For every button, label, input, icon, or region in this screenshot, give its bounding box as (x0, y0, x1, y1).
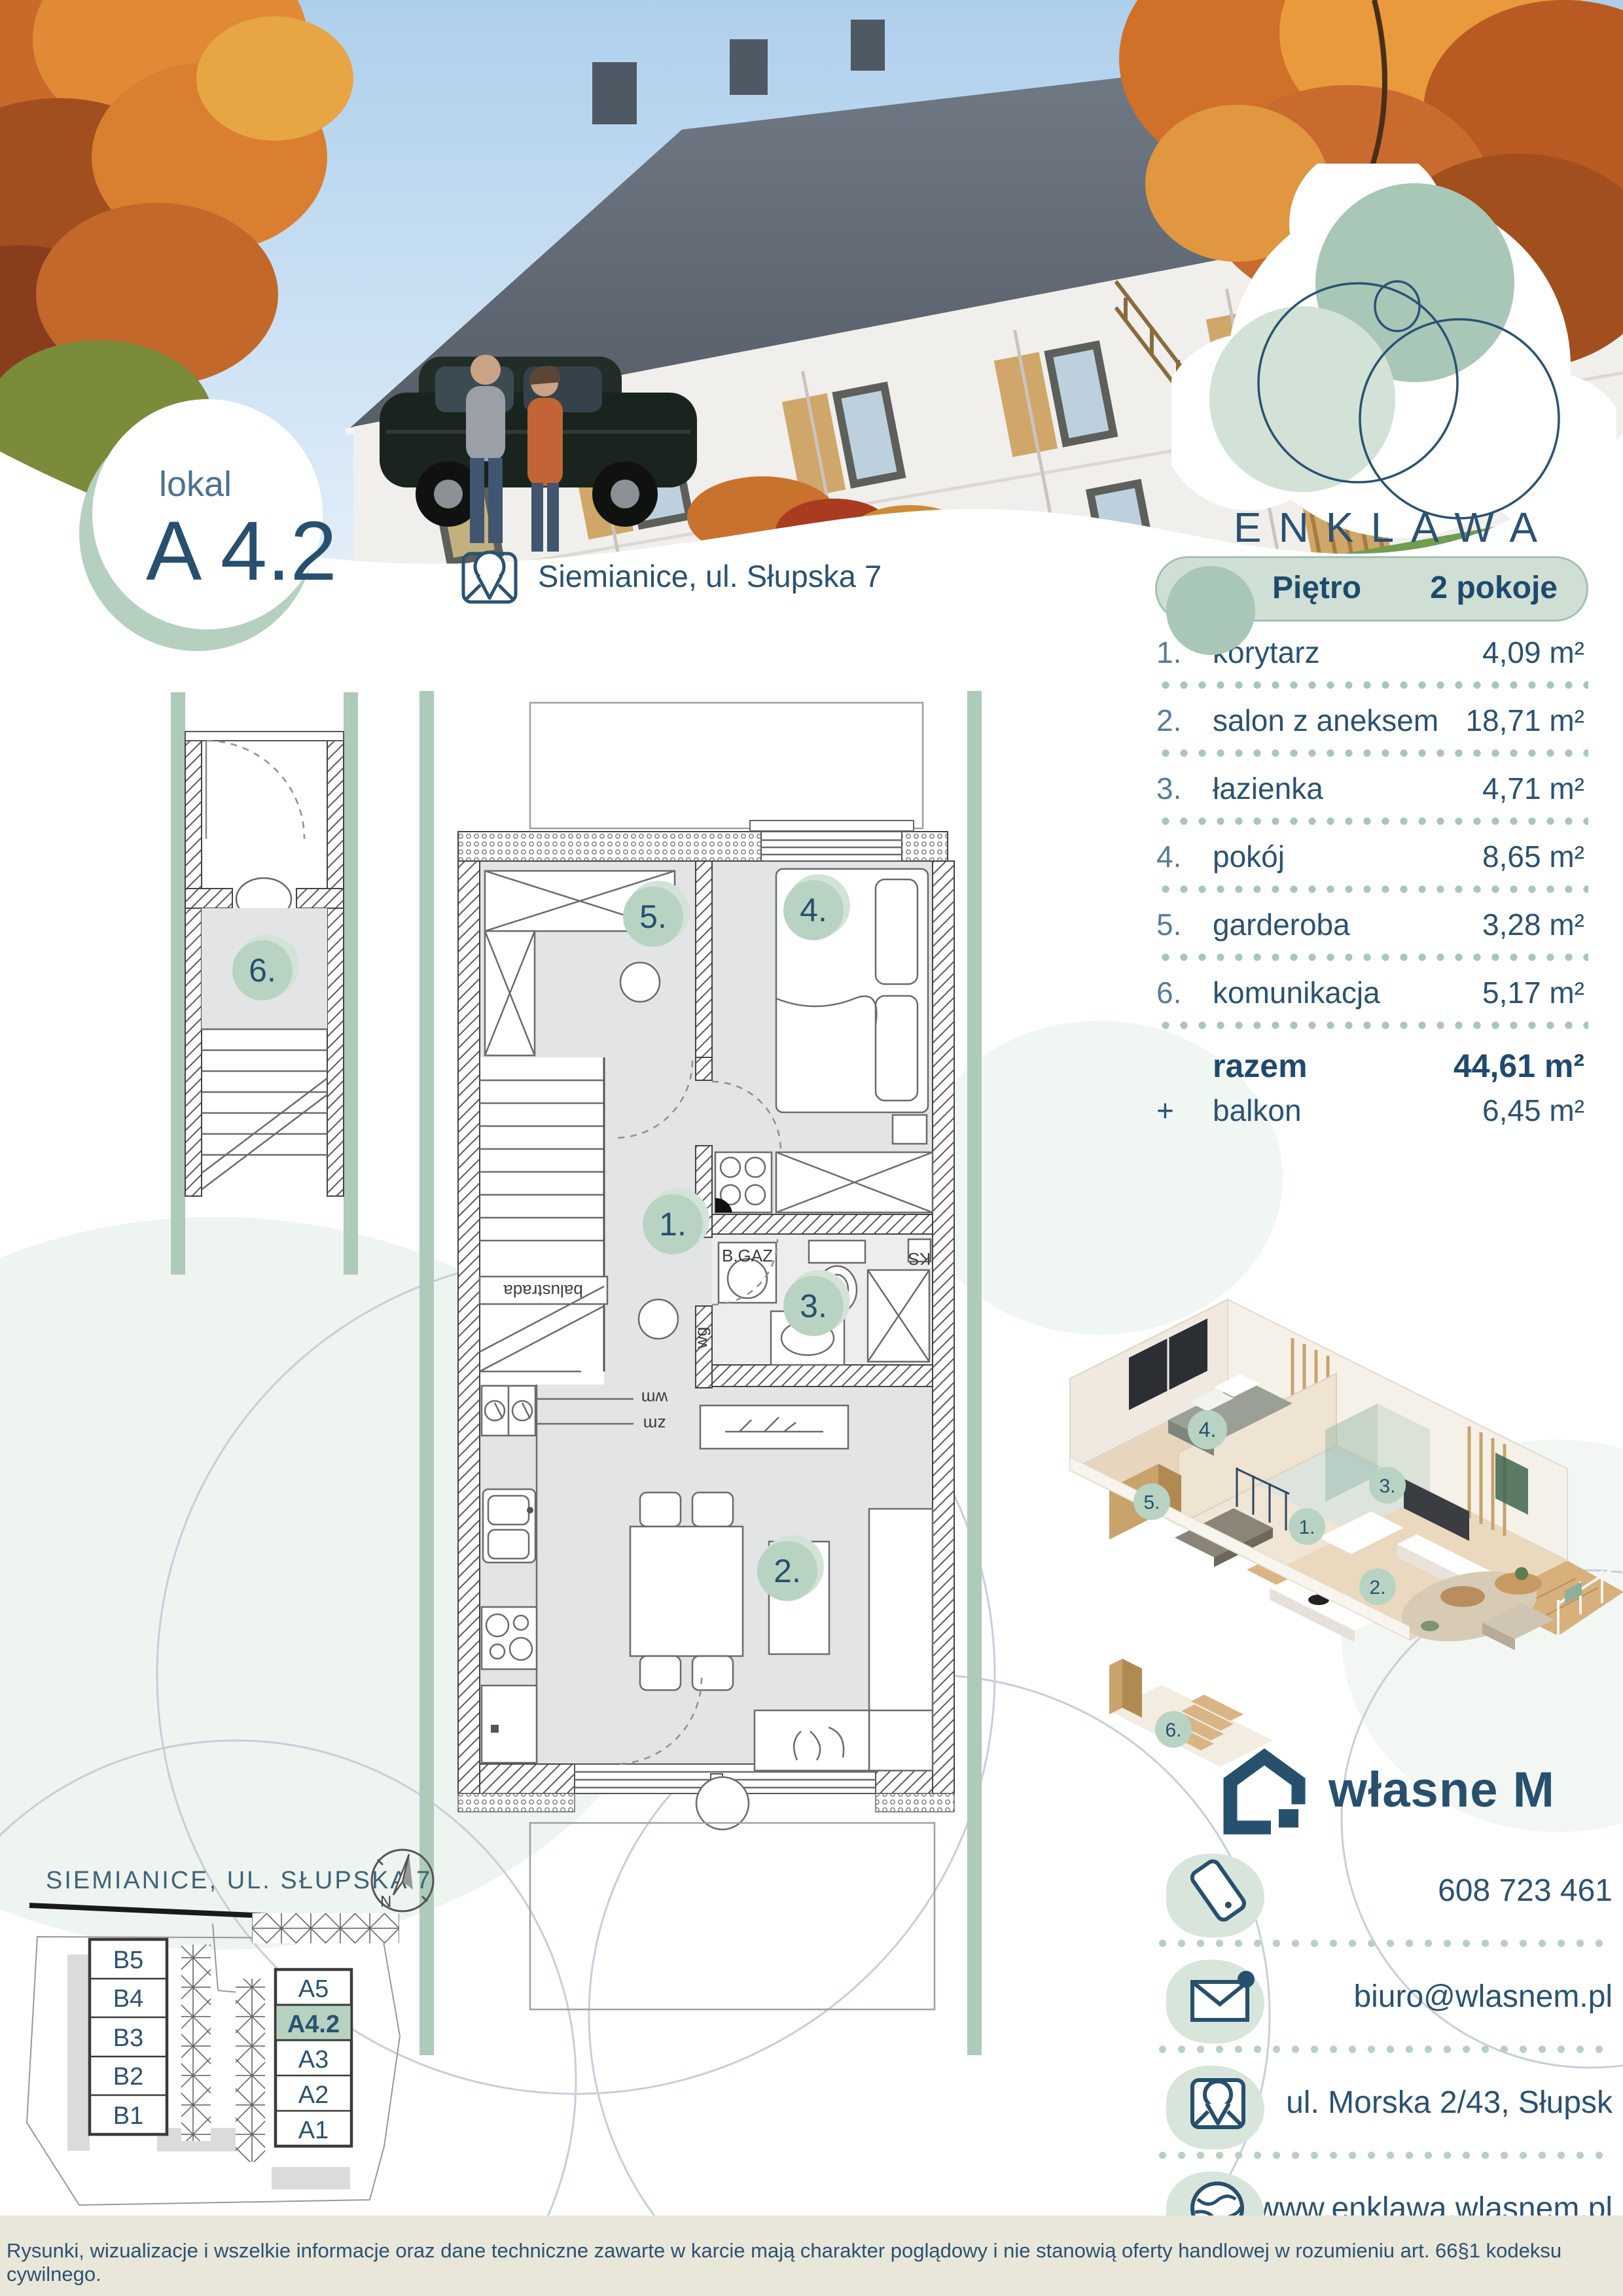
table-row: 6. komunikacja 5,17 m² (1155, 962, 1588, 1021)
row-value: 8,65 m² (1482, 839, 1584, 874)
balcony-outline (530, 1823, 935, 2009)
address-row[interactable]: ul. Morska 2/43, Słupsk (1153, 2054, 1613, 2151)
phone-icon (1178, 1851, 1257, 1930)
shower (868, 1270, 929, 1362)
dotted-separator (1153, 2045, 1613, 2054)
row-label: łazienka (1213, 771, 1482, 806)
balcony-row: + balkon 6,45 m² (1155, 1087, 1588, 1128)
svg-text:1.: 1. (659, 1206, 687, 1243)
chimney (730, 39, 768, 95)
table-row: 4. pokój 8,65 m² (1155, 826, 1588, 885)
area-table-header: Piętro 2 pokoje (1155, 556, 1588, 622)
phone-number[interactable]: 608 723 461 (1438, 1873, 1613, 1909)
total-value: 44,61 m² (1454, 1047, 1584, 1085)
house-logo-icon (1211, 1744, 1309, 1835)
badge-unit-number: A 4.2 (146, 504, 337, 598)
agency-name: własne M (1329, 1761, 1555, 1818)
floor-plan-main: B.GAZ wg KS (418, 691, 984, 2062)
total-label: razem (1213, 1047, 1454, 1085)
svg-text:A4.2: A4.2 (287, 2011, 340, 2038)
row-no: 2. (1156, 703, 1213, 738)
building-a: A5 A4.2 A3 A2 A1 (276, 1969, 351, 2146)
svg-text:6.: 6. (249, 952, 276, 989)
total-row: razem 44,61 m² (1155, 1030, 1588, 1087)
parking-strip (181, 1945, 211, 2141)
svg-text:1.: 1. (1298, 1517, 1315, 1538)
dotted-separator (1156, 680, 1588, 690)
map-pin-icon (458, 544, 521, 607)
email-icon (1178, 1957, 1263, 2036)
row-label: komunikacja (1213, 975, 1482, 1010)
tv-bench (700, 1405, 848, 1449)
header-floor: Piętro (1272, 558, 1361, 618)
isometric-3d-render: 4. 5. 3. 1. 2. 6. (1011, 1122, 1623, 1790)
row-no: 4. (1156, 839, 1213, 874)
balcony-value: 6,45 m² (1482, 1093, 1584, 1128)
svg-text:3.: 3. (1379, 1475, 1395, 1497)
location-row: Siemianice, ul. Słupska 7 (458, 544, 882, 607)
svg-text:4.: 4. (1199, 1418, 1217, 1441)
contact-block: własne M 608 723 461 biuro@wlasnem.pl (1153, 1737, 1613, 2257)
svg-text:B4: B4 (113, 1985, 143, 2013)
dotted-separator (1153, 1939, 1613, 1948)
svg-text:A3: A3 (298, 2046, 329, 2074)
row-value: 18,71 m² (1465, 703, 1584, 738)
svg-text:B3: B3 (113, 2024, 143, 2052)
badge-label: lokal (159, 465, 232, 504)
row-value: 4,71 m² (1482, 771, 1584, 806)
row-label: korytarz (1213, 635, 1482, 670)
table-row: 3. łazienka 4,71 m² (1155, 758, 1588, 817)
agency-logo-row: własne M (1153, 1737, 1613, 1842)
svg-text:A1: A1 (298, 2117, 329, 2144)
row-no: 3. (1156, 771, 1213, 806)
footer-disclaimer-bar: Rysunki, wizualizacje i wszelkie informa… (0, 2216, 1623, 2296)
brand-name: ENKLAWA (1234, 504, 1554, 551)
svg-text:5.: 5. (1143, 1492, 1160, 1513)
floor-plan-staircase-strip: 6. (166, 692, 362, 1281)
dotted-separator (1156, 885, 1588, 894)
svg-text:5.: 5. (639, 898, 667, 935)
email-address[interactable]: biuro@wlasnem.pl (1353, 1979, 1613, 2015)
enklawa-logo: ENKLAWA (1171, 164, 1616, 569)
north-label: N (380, 1893, 391, 1911)
email-row[interactable]: biuro@wlasnem.pl (1153, 1948, 1613, 2045)
built-in-closet (715, 1152, 933, 1212)
location-text: Siemianice, ul. Słupska 7 (538, 558, 882, 594)
row-value: 5,17 m² (1482, 975, 1584, 1010)
table-row: 5. garderoba 3,28 m² (1155, 894, 1588, 953)
address-pin-icon (1178, 2063, 1257, 2142)
wg-label: wg (691, 1327, 711, 1349)
dotted-separator (1156, 953, 1588, 962)
disclaimer-text: Rysunki, wizualizacje i wszelkie informa… (0, 2216, 1623, 2286)
svg-text:KS: KS (908, 1249, 931, 1269)
dotted-separator (1156, 749, 1588, 758)
row-no: 6. (1156, 975, 1213, 1010)
area-table: Piętro 2 pokoje 1. korytarz 4,09 m² 2. s… (1155, 556, 1588, 1128)
parking-strip (252, 1913, 399, 1943)
office-address[interactable]: ul. Morska 2/43, Słupsk (1286, 2085, 1613, 2121)
svg-text:B2: B2 (113, 2063, 143, 2091)
chimney (851, 20, 885, 71)
svg-text:3.: 3. (800, 1288, 827, 1324)
row-label: garderoba (1213, 907, 1482, 942)
row-no: 5. (1156, 907, 1213, 942)
svg-text:2.: 2. (774, 1553, 801, 1589)
stairs (202, 1029, 327, 1190)
row-value: 3,28 m² (1482, 907, 1584, 942)
unit-badge: lokal A 4.2 (69, 386, 344, 661)
dotted-separator (1153, 2151, 1613, 2160)
svg-text:4.: 4. (800, 892, 827, 928)
table-row: 2. salon z aneksem 18,71 m² (1155, 690, 1588, 749)
svg-text:B1: B1 (113, 2102, 143, 2130)
plus-sign: + (1156, 1093, 1213, 1128)
dotted-separator (1156, 817, 1588, 826)
balcony-label: balkon (1213, 1093, 1482, 1128)
coffee-table-3d (1440, 1586, 1485, 1607)
row-label: pokój (1213, 839, 1482, 874)
balustrade-label: balustrada (503, 1281, 583, 1301)
dotted-separator (1156, 1021, 1588, 1030)
site-map: SIEMIANICE, UL. SŁUPSKA 7 N B5 B4 B3 (16, 1840, 438, 2225)
svg-text:B.GAZ: B.GAZ (722, 1246, 773, 1265)
header-rooms: 2 pokoje (1430, 558, 1558, 618)
phone-row[interactable]: 608 723 461 (1153, 1842, 1613, 1939)
dishwasher-label: zm (643, 1415, 666, 1434)
chimney (592, 62, 637, 124)
svg-text:2.: 2. (1369, 1577, 1385, 1598)
parking-strip (236, 1979, 265, 2162)
washing-machine-label: wm (641, 1388, 668, 1408)
svg-text:B5: B5 (113, 1947, 143, 1974)
ks-box: KS (908, 1239, 931, 1269)
row-label: salon z aneksem (1213, 703, 1465, 738)
row-value: 4,09 m² (1482, 635, 1584, 670)
svg-text:A2: A2 (298, 2081, 329, 2109)
unit-card-page: lokal A 4.2 ENKLAWA Siemianice, ul. Słup (0, 0, 1623, 2296)
svg-text:A5: A5 (298, 1975, 329, 2003)
building-b: B5 B4 B3 B2 B1 (90, 1939, 167, 2134)
